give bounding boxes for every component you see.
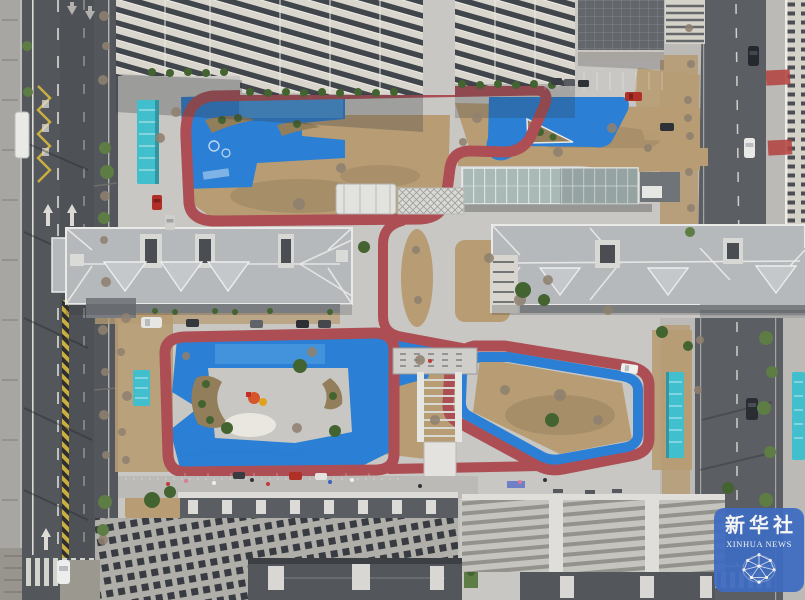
watermark-title-cn: 新华社 [721,516,797,536]
car [57,560,70,584]
bus [15,112,29,158]
car [152,195,162,210]
car [318,320,331,328]
tower-1 [116,0,240,76]
red-stall-marking [768,139,793,155]
parking-entrance-canopy [336,184,464,214]
car [315,473,327,480]
center-left-building [52,228,352,318]
red-stall-marking [766,69,791,85]
bottom-buildings [60,476,725,600]
teal-canopy [133,370,150,406]
car [744,138,755,158]
car [625,92,642,101]
car [578,80,589,87]
tower-2 [240,0,423,95]
oval-planter-island [401,229,433,327]
car [250,320,263,328]
car [564,79,575,86]
xinhua-watermark: 新华社 XINHUA NEWS [714,508,804,592]
car [748,46,759,66]
dark-roof-b3s [520,572,715,600]
teal-canopy [792,372,805,460]
car [289,472,302,480]
car [660,123,674,131]
slab-building [665,0,705,44]
car [296,320,309,328]
watermark-title-en: XINHUA NEWS [726,539,792,549]
car [233,472,245,479]
tower-3 [455,0,575,86]
car [141,317,162,328]
flat-roof-building [578,0,664,70]
rooftop-b3 [462,494,725,572]
car [746,398,758,420]
lattice-grate [398,188,464,214]
glass-canopy [462,168,680,212]
car [551,78,562,85]
west-facade [490,255,518,313]
blue-mat [507,481,525,488]
track-connector-bottom [390,466,540,469]
network-globe-icon [739,551,779,585]
car [165,215,175,230]
scene-canvas [0,0,805,600]
car [186,319,199,327]
right-edge-building [785,0,805,258]
aerial-photo: 新华社 XINHUA NEWS [0,0,805,600]
center-right-building [490,225,805,318]
teal-canopy [666,372,684,458]
teal-canopy [137,100,159,184]
dark-roof-b2 [248,558,462,600]
apartment-b1-left [95,518,257,600]
